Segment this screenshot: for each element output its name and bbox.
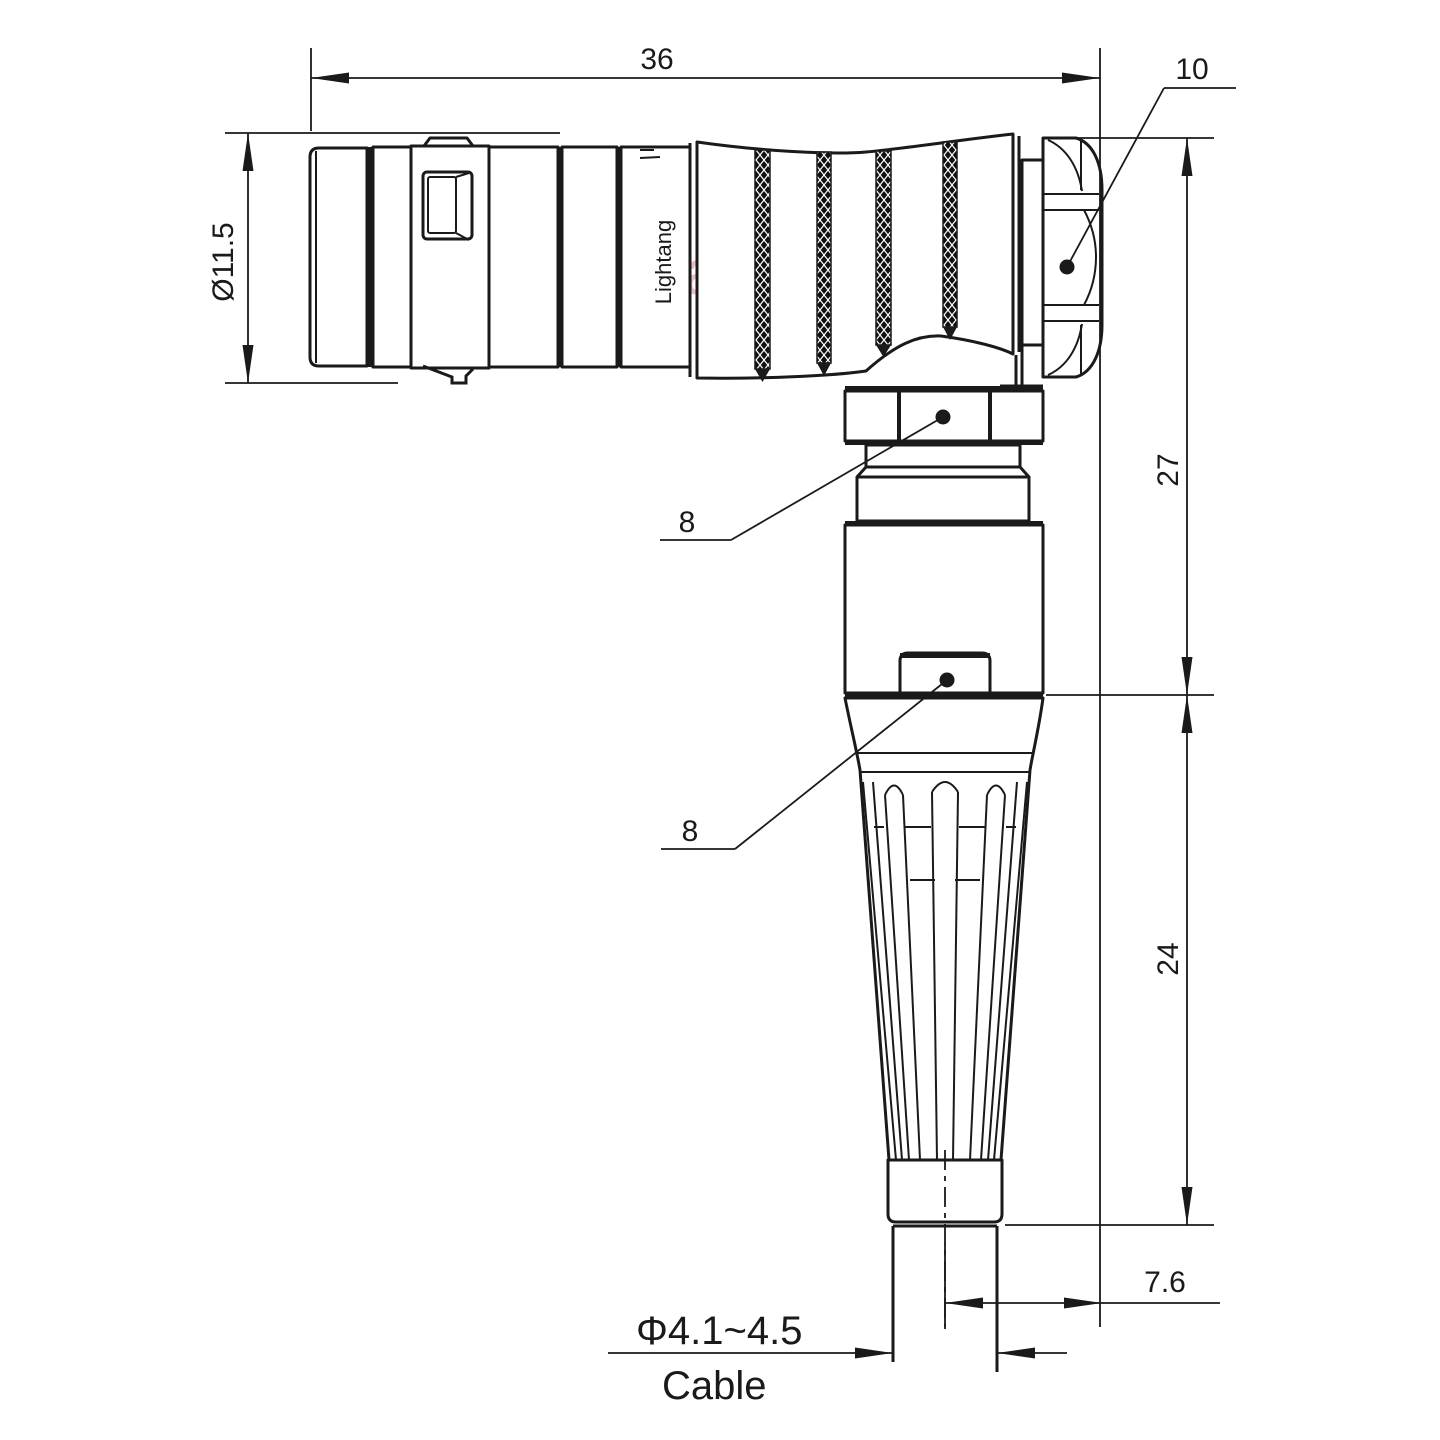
arrowhead [855,1348,893,1359]
front-ring [373,147,411,367]
dim-label-27: 27 [1152,453,1185,486]
arrowhead [1182,657,1193,695]
arrowhead [1182,1187,1193,1225]
connector-technical-drawing: Lightang Lightang [0,0,1440,1440]
leader-dot [936,410,951,425]
dim-label-diameter: Ø11.5 [207,222,240,302]
leader-dot [940,673,955,688]
cable-label: Cable [662,1364,767,1408]
arrowhead [311,73,349,84]
connector-part: Lightang [310,134,1102,1372]
knurl-band [755,150,770,369]
boot-body [697,134,1013,378]
arrowhead [945,1298,983,1309]
engraved-logo-text: Lightang [651,220,676,304]
barrel-section [489,147,558,367]
arrowhead [1062,73,1100,84]
hex-nut-facet [897,391,901,441]
dim-label-36: 36 [640,43,673,76]
knurl-band [876,151,891,345]
dim-label-76: 7.6 [1144,1266,1186,1299]
arrowhead [1182,138,1193,176]
cable-diameter-label: Φ4.1~4.5 [636,1309,802,1353]
technical-drawing-canvas: Lightang Lightang [0,0,1440,1440]
front-cap [310,148,367,366]
arrowhead [1182,695,1193,733]
dim-label-10: 10 [1175,53,1208,86]
sleeve-top-tab [424,138,473,146]
engraving-tick [640,157,660,158]
knurl-band [817,152,831,363]
hex-nut-facet [988,391,992,441]
leader-dot [1060,260,1075,275]
latch-window [423,172,472,239]
barrel-section [562,147,617,367]
arrowhead [997,1348,1035,1359]
collar [857,477,1029,521]
arrowhead [243,133,254,171]
dim-label-8-hex: 8 [679,506,696,539]
latch-boss-top-band [900,653,990,658]
dim-label-24: 24 [1152,942,1185,975]
dim-label-8-boss: 8 [682,815,699,848]
hex-nut-top-band [845,386,1043,391]
arrowhead [243,345,254,383]
knurl-band [943,142,957,327]
arrowhead [1064,1298,1102,1309]
boot-washer [1022,160,1043,345]
